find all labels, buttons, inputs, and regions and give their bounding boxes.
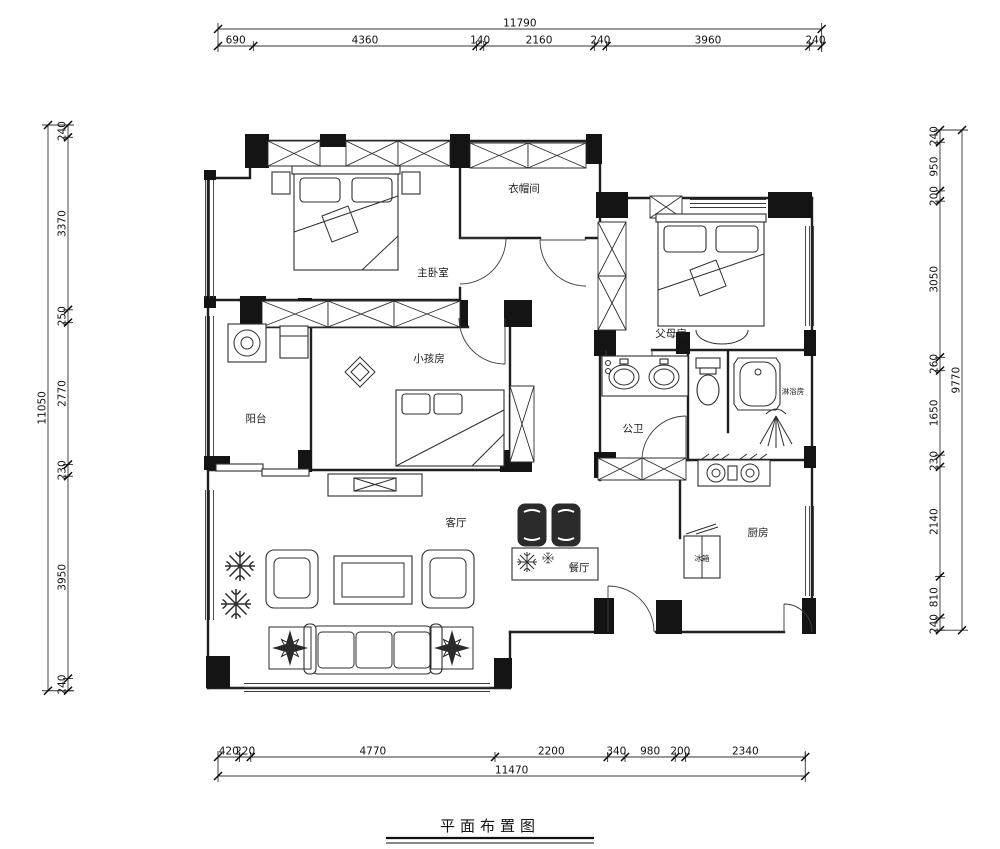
dimension-label: 3950: [57, 564, 69, 591]
dimension-label: 240: [929, 126, 941, 146]
dimension-label: 240: [805, 35, 825, 47]
dimension-label: 4360: [352, 35, 379, 47]
bathtub: [734, 358, 780, 410]
dimension-label: 4770: [360, 746, 387, 758]
room-label-parents-room: 父母房: [655, 327, 687, 340]
fridge: [684, 524, 720, 578]
parents-bed: [656, 214, 766, 344]
dimension-label: 340: [606, 746, 626, 758]
shower-head-icon: [760, 409, 792, 448]
dimension-label: 2160: [526, 35, 553, 47]
title-block: 平面布置图: [386, 817, 594, 843]
dimension-label: 11050: [37, 391, 49, 424]
dimension-label: 140: [470, 35, 490, 47]
dimension-label: 1650: [929, 400, 941, 427]
dimension-label: 3050: [929, 266, 941, 293]
room-label-kids-room: 小孩房: [413, 352, 445, 365]
dimension-label: 11470: [495, 765, 528, 777]
dimension-label: 240: [929, 614, 941, 634]
dimension-label: 230: [929, 451, 941, 471]
dimension-label: 220: [235, 746, 255, 758]
dimension-label: 230: [57, 460, 69, 480]
dimension-label: 2770: [57, 380, 69, 407]
dimension-label: 3960: [695, 35, 722, 47]
washing-machine: [228, 324, 308, 362]
tv-cabinet: [328, 474, 422, 496]
dimension-label: 200: [929, 186, 941, 206]
bathroom-sinks: [602, 356, 688, 396]
dimension-label: 2140: [929, 508, 941, 535]
room-label-public-bathroom: 公卫: [623, 423, 644, 435]
room-label-fridge: 冰箱: [695, 553, 710, 563]
floor-plan-drawing: 主卧室 衣帽间 父母房 小孩房 阳台 公卫 淋浴房 客厅 餐厅 厨房 冰箱 69…: [0, 0, 1000, 849]
dimension-label: 810: [929, 587, 941, 607]
dimension-label: 240: [590, 35, 610, 47]
kids-bed: [396, 390, 504, 466]
dimension-label: 240: [57, 121, 69, 141]
toilet: [696, 358, 720, 405]
dimension-chain-left: 24033702502770230395024011050: [37, 121, 75, 695]
dimension-label: 2340: [732, 746, 759, 758]
room-label-balcony: 阳台: [246, 412, 267, 425]
dimension-chain-right: 2409502003050260165023021408102409770: [929, 126, 969, 634]
room-label-walk-in-closet: 衣帽间: [508, 182, 540, 195]
room-label-master-bedroom: 主卧室: [417, 266, 449, 279]
master-bed: [272, 166, 420, 270]
dimension-label: 250: [57, 306, 69, 326]
dimension-label: 690: [226, 35, 246, 47]
dimension-label: 240: [57, 675, 69, 695]
kids-stool: [345, 357, 375, 387]
dimension-label: 11790: [503, 18, 536, 30]
drawing-title: 平面布置图: [440, 817, 540, 835]
dimension-chain-bottom: 42022047702200340980200234011470: [214, 746, 809, 783]
room-label-shower-room: 淋浴房: [782, 386, 805, 396]
dimension-label: 9770: [951, 367, 963, 394]
sofa-set: [266, 550, 474, 674]
dimension-label: 200: [670, 746, 690, 758]
dimension-label: 2200: [538, 746, 565, 758]
room-label-dining-room: 餐厅: [569, 561, 590, 574]
dimension-label: 980: [640, 746, 660, 758]
dimension-label: 3370: [57, 210, 69, 237]
dimension-label: 260: [929, 354, 941, 374]
room-label-kitchen: 厨房: [748, 526, 769, 539]
plants: [221, 551, 255, 619]
dimension-chain-top: 69043601402160240396024011790: [214, 18, 826, 53]
dimension-label: 950: [929, 157, 941, 177]
room-label-living-room: 客厅: [446, 516, 467, 529]
